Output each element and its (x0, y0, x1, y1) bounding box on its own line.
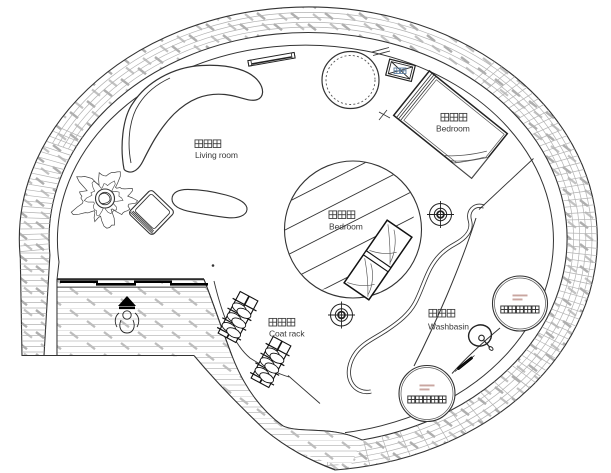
svg-text:Coat rack: Coat rack (269, 329, 305, 339)
svg-text:Washbasin: Washbasin (428, 322, 469, 332)
svg-text:Bedroom: Bedroom (436, 124, 470, 134)
svg-text:Bedroom: Bedroom (329, 222, 363, 232)
svg-text:Living room: Living room (195, 150, 238, 160)
